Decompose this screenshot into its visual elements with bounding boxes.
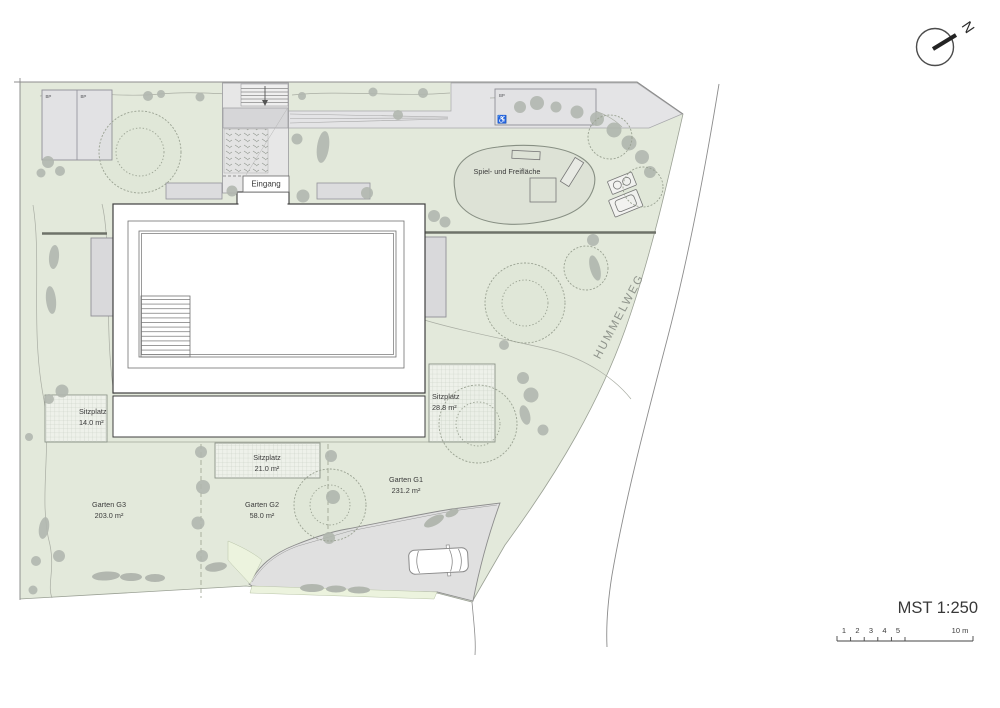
tree	[564, 246, 608, 290]
tree	[31, 556, 41, 566]
tree	[440, 217, 451, 228]
tree	[369, 88, 378, 97]
tree	[571, 106, 584, 119]
tree	[514, 101, 526, 113]
tree	[292, 134, 303, 145]
tree	[530, 96, 544, 110]
entrance-label: Eingang	[243, 176, 289, 192]
tree	[192, 517, 205, 530]
tree	[623, 167, 663, 207]
tree	[418, 88, 428, 98]
tree	[298, 92, 306, 100]
svg-text:231.2 m²: 231.2 m²	[392, 486, 421, 495]
tree	[524, 388, 539, 403]
car-mirror	[446, 545, 449, 549]
tree	[361, 187, 373, 199]
tree	[53, 550, 65, 562]
svg-text:Garten G1: Garten G1	[389, 475, 423, 484]
svg-text:Sitzplatz: Sitzplatz	[79, 407, 107, 416]
svg-text:Garten G3: Garten G3	[92, 500, 126, 509]
scale-end-label: 10 m	[952, 626, 969, 635]
site-plan: BP BP BP ♿	[0, 0, 1000, 708]
tree	[485, 263, 565, 343]
tree	[196, 480, 210, 494]
tree	[294, 469, 366, 541]
scale-tick: 2	[855, 626, 859, 635]
tree	[29, 586, 38, 595]
tree	[196, 550, 208, 562]
tree	[25, 433, 33, 441]
tree	[428, 210, 440, 222]
building-footprint	[113, 192, 425, 437]
tree	[393, 110, 403, 120]
tree	[517, 372, 529, 384]
scale-tick: 3	[869, 626, 873, 635]
svg-text:58.0 m²: 58.0 m²	[250, 511, 275, 520]
tree	[588, 115, 632, 159]
tree	[44, 394, 54, 404]
tree	[297, 190, 310, 203]
parking-stall-label: BP	[499, 93, 505, 98]
tree	[227, 186, 238, 197]
north-arrow: N	[917, 19, 977, 66]
south-terrace-strip	[113, 396, 425, 437]
north-label: N	[958, 19, 977, 37]
svg-text:21.0 m²: 21.0 m²	[255, 464, 280, 473]
terrace-west	[91, 238, 113, 316]
svg-text:14.0 m²: 14.0 m²	[79, 418, 104, 427]
tree	[196, 93, 205, 102]
tree	[55, 166, 65, 176]
entry-platform	[223, 108, 288, 128]
tree	[37, 169, 46, 178]
wheelchair-icon: ♿	[497, 114, 507, 124]
scale-tick: 5	[896, 626, 900, 635]
scale-tick: 1	[842, 626, 846, 635]
tree	[157, 90, 165, 98]
svg-text:Sitzplatz: Sitzplatz	[253, 453, 281, 462]
tree	[499, 340, 509, 350]
tree	[551, 102, 562, 113]
tree	[42, 156, 54, 168]
terrace-east	[425, 237, 446, 317]
tree	[587, 234, 599, 246]
svg-text:Eingang: Eingang	[251, 180, 280, 189]
svg-text:Garten G2: Garten G2	[245, 500, 279, 509]
tree	[635, 150, 649, 164]
tree	[143, 91, 153, 101]
car-mirror	[448, 572, 451, 576]
scale-label: MST 1:250	[898, 599, 978, 617]
building-stair-hatch	[141, 296, 190, 357]
planter-west	[166, 183, 222, 199]
playground-label: Spiel- und Freifläche	[474, 167, 541, 176]
tree	[99, 111, 181, 193]
parking-stall-label: BP	[81, 94, 87, 99]
tree	[195, 446, 207, 458]
svg-text:28.8 m²: 28.8 m²	[432, 403, 457, 412]
scale-bar: MST 1:250 1 2 3 4 5 10 m	[837, 599, 978, 641]
svg-text:203.0 m²: 203.0 m²	[95, 511, 124, 520]
site-plan-page: BP BP BP ♿	[0, 0, 1000, 708]
scale-tick: 4	[882, 626, 886, 635]
tree	[538, 425, 549, 436]
svg-text:Sitzplatz: Sitzplatz	[432, 392, 460, 401]
parking-stall-label: BP	[46, 94, 52, 99]
tree	[325, 450, 337, 462]
tree	[56, 385, 69, 398]
